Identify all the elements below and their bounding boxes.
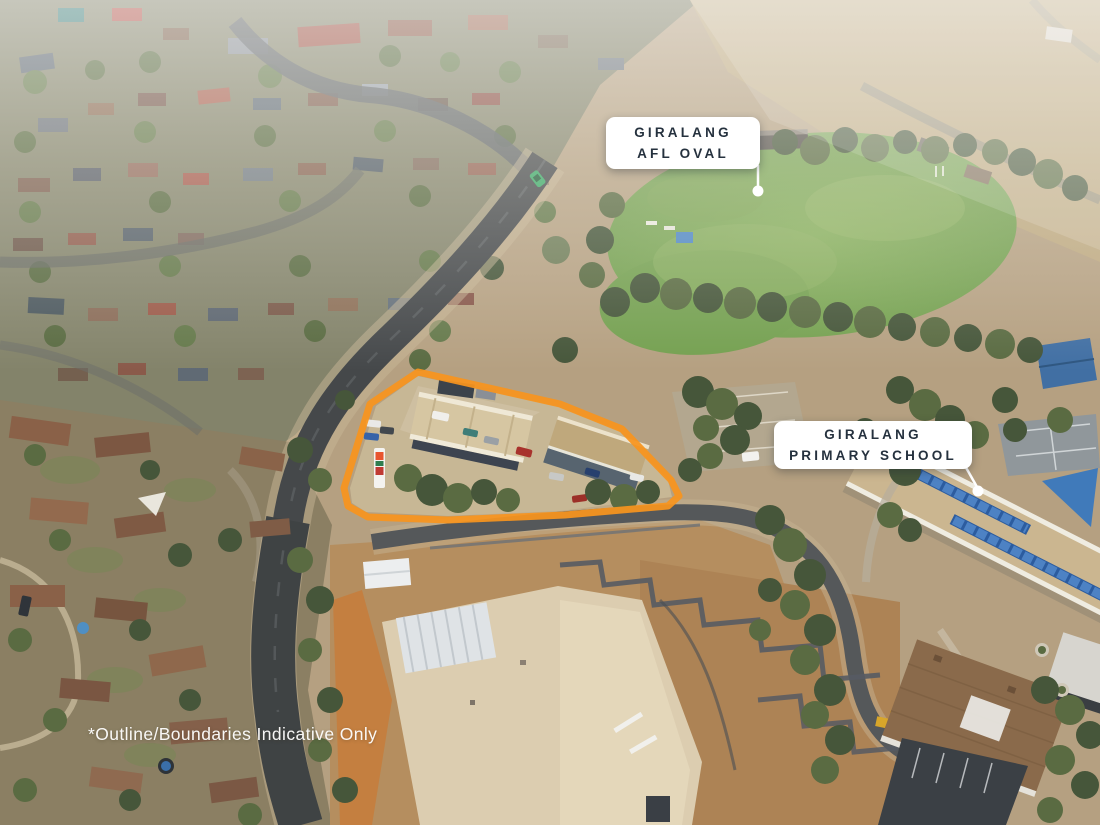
aerial-photograph bbox=[0, 0, 1100, 825]
afl-oval-label-line2: AFL OVAL bbox=[606, 143, 760, 164]
afl-oval-label-line1: GIRALANG bbox=[606, 122, 760, 143]
boundary-disclaimer: *Outline/Boundaries Indicative Only bbox=[88, 724, 377, 745]
aerial-photo-stage: GIRALANG AFL OVAL GIRALANG PRIMARY SCHOO… bbox=[0, 0, 1100, 825]
primary-school-label-line2: PRIMARY SCHOOL bbox=[774, 445, 972, 466]
primary-school-label: GIRALANG PRIMARY SCHOOL bbox=[774, 421, 972, 469]
primary-school-label-line1: GIRALANG bbox=[774, 424, 972, 445]
afl-oval-label: GIRALANG AFL OVAL bbox=[606, 117, 760, 169]
